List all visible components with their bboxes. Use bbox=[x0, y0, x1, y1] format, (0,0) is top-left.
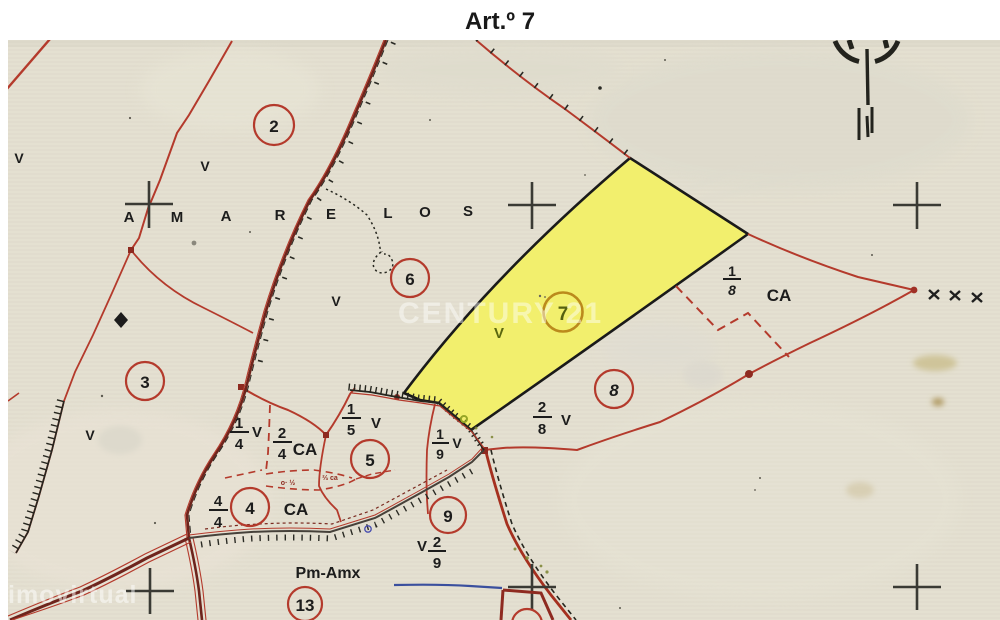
svg-text:9: 9 bbox=[443, 507, 452, 526]
svg-text:4: 4 bbox=[278, 446, 287, 463]
svg-text:A: A bbox=[221, 208, 232, 225]
svg-text:E: E bbox=[326, 206, 336, 223]
svg-text:13: 13 bbox=[296, 596, 315, 615]
svg-text:V: V bbox=[85, 427, 95, 443]
svg-text:V: V bbox=[14, 150, 24, 166]
svg-text:1: 1 bbox=[235, 415, 243, 432]
svg-text:CA: CA bbox=[293, 440, 318, 459]
svg-text:Pm-Amx: Pm-Amx bbox=[296, 565, 361, 582]
svg-text:V: V bbox=[417, 538, 427, 555]
svg-text:2: 2 bbox=[538, 399, 546, 416]
svg-text:V: V bbox=[200, 158, 210, 174]
svg-text:3: 3 bbox=[140, 373, 149, 392]
svg-text:8: 8 bbox=[609, 381, 619, 400]
svg-text:V: V bbox=[452, 435, 462, 451]
svg-text:1: 1 bbox=[728, 263, 736, 279]
svg-text:5: 5 bbox=[365, 451, 374, 470]
svg-text:4: 4 bbox=[214, 514, 223, 531]
svg-text:1: 1 bbox=[347, 401, 355, 418]
svg-text:4: 4 bbox=[214, 493, 223, 510]
svg-text:4: 4 bbox=[245, 499, 255, 518]
svg-text:CENTURY 21: CENTURY 21 bbox=[398, 297, 603, 330]
svg-text:9: 9 bbox=[433, 555, 441, 572]
svg-text:8: 8 bbox=[538, 421, 546, 438]
svg-text:V: V bbox=[371, 415, 381, 432]
svg-text:2: 2 bbox=[278, 425, 286, 442]
svg-text:Art.º 7: Art.º 7 bbox=[465, 8, 535, 35]
svg-text:A: A bbox=[124, 209, 135, 226]
svg-text:R: R bbox=[275, 207, 286, 224]
svg-text:9: 9 bbox=[436, 446, 444, 462]
svg-text:5: 5 bbox=[347, 422, 355, 439]
svg-text:⅔ ca: ⅔ ca bbox=[322, 475, 338, 482]
svg-text:V: V bbox=[331, 293, 341, 309]
svg-text:1: 1 bbox=[436, 426, 444, 442]
svg-text:CA: CA bbox=[767, 286, 792, 305]
svg-text:M: M bbox=[171, 209, 184, 226]
svg-text:8: 8 bbox=[728, 282, 736, 298]
svg-text:imovirtual: imovirtual bbox=[8, 581, 137, 609]
svg-text:2: 2 bbox=[269, 117, 278, 136]
svg-text:L: L bbox=[383, 205, 392, 222]
svg-text:V: V bbox=[561, 412, 571, 429]
svg-text:o· ½: o· ½ bbox=[281, 479, 296, 487]
svg-text:CA: CA bbox=[284, 500, 309, 519]
svg-text:6: 6 bbox=[405, 270, 414, 289]
svg-text:2: 2 bbox=[433, 534, 441, 551]
svg-text:4: 4 bbox=[235, 436, 244, 453]
svg-text:V: V bbox=[252, 424, 262, 441]
svg-text:O: O bbox=[419, 204, 431, 221]
svg-text:S: S bbox=[463, 203, 473, 220]
